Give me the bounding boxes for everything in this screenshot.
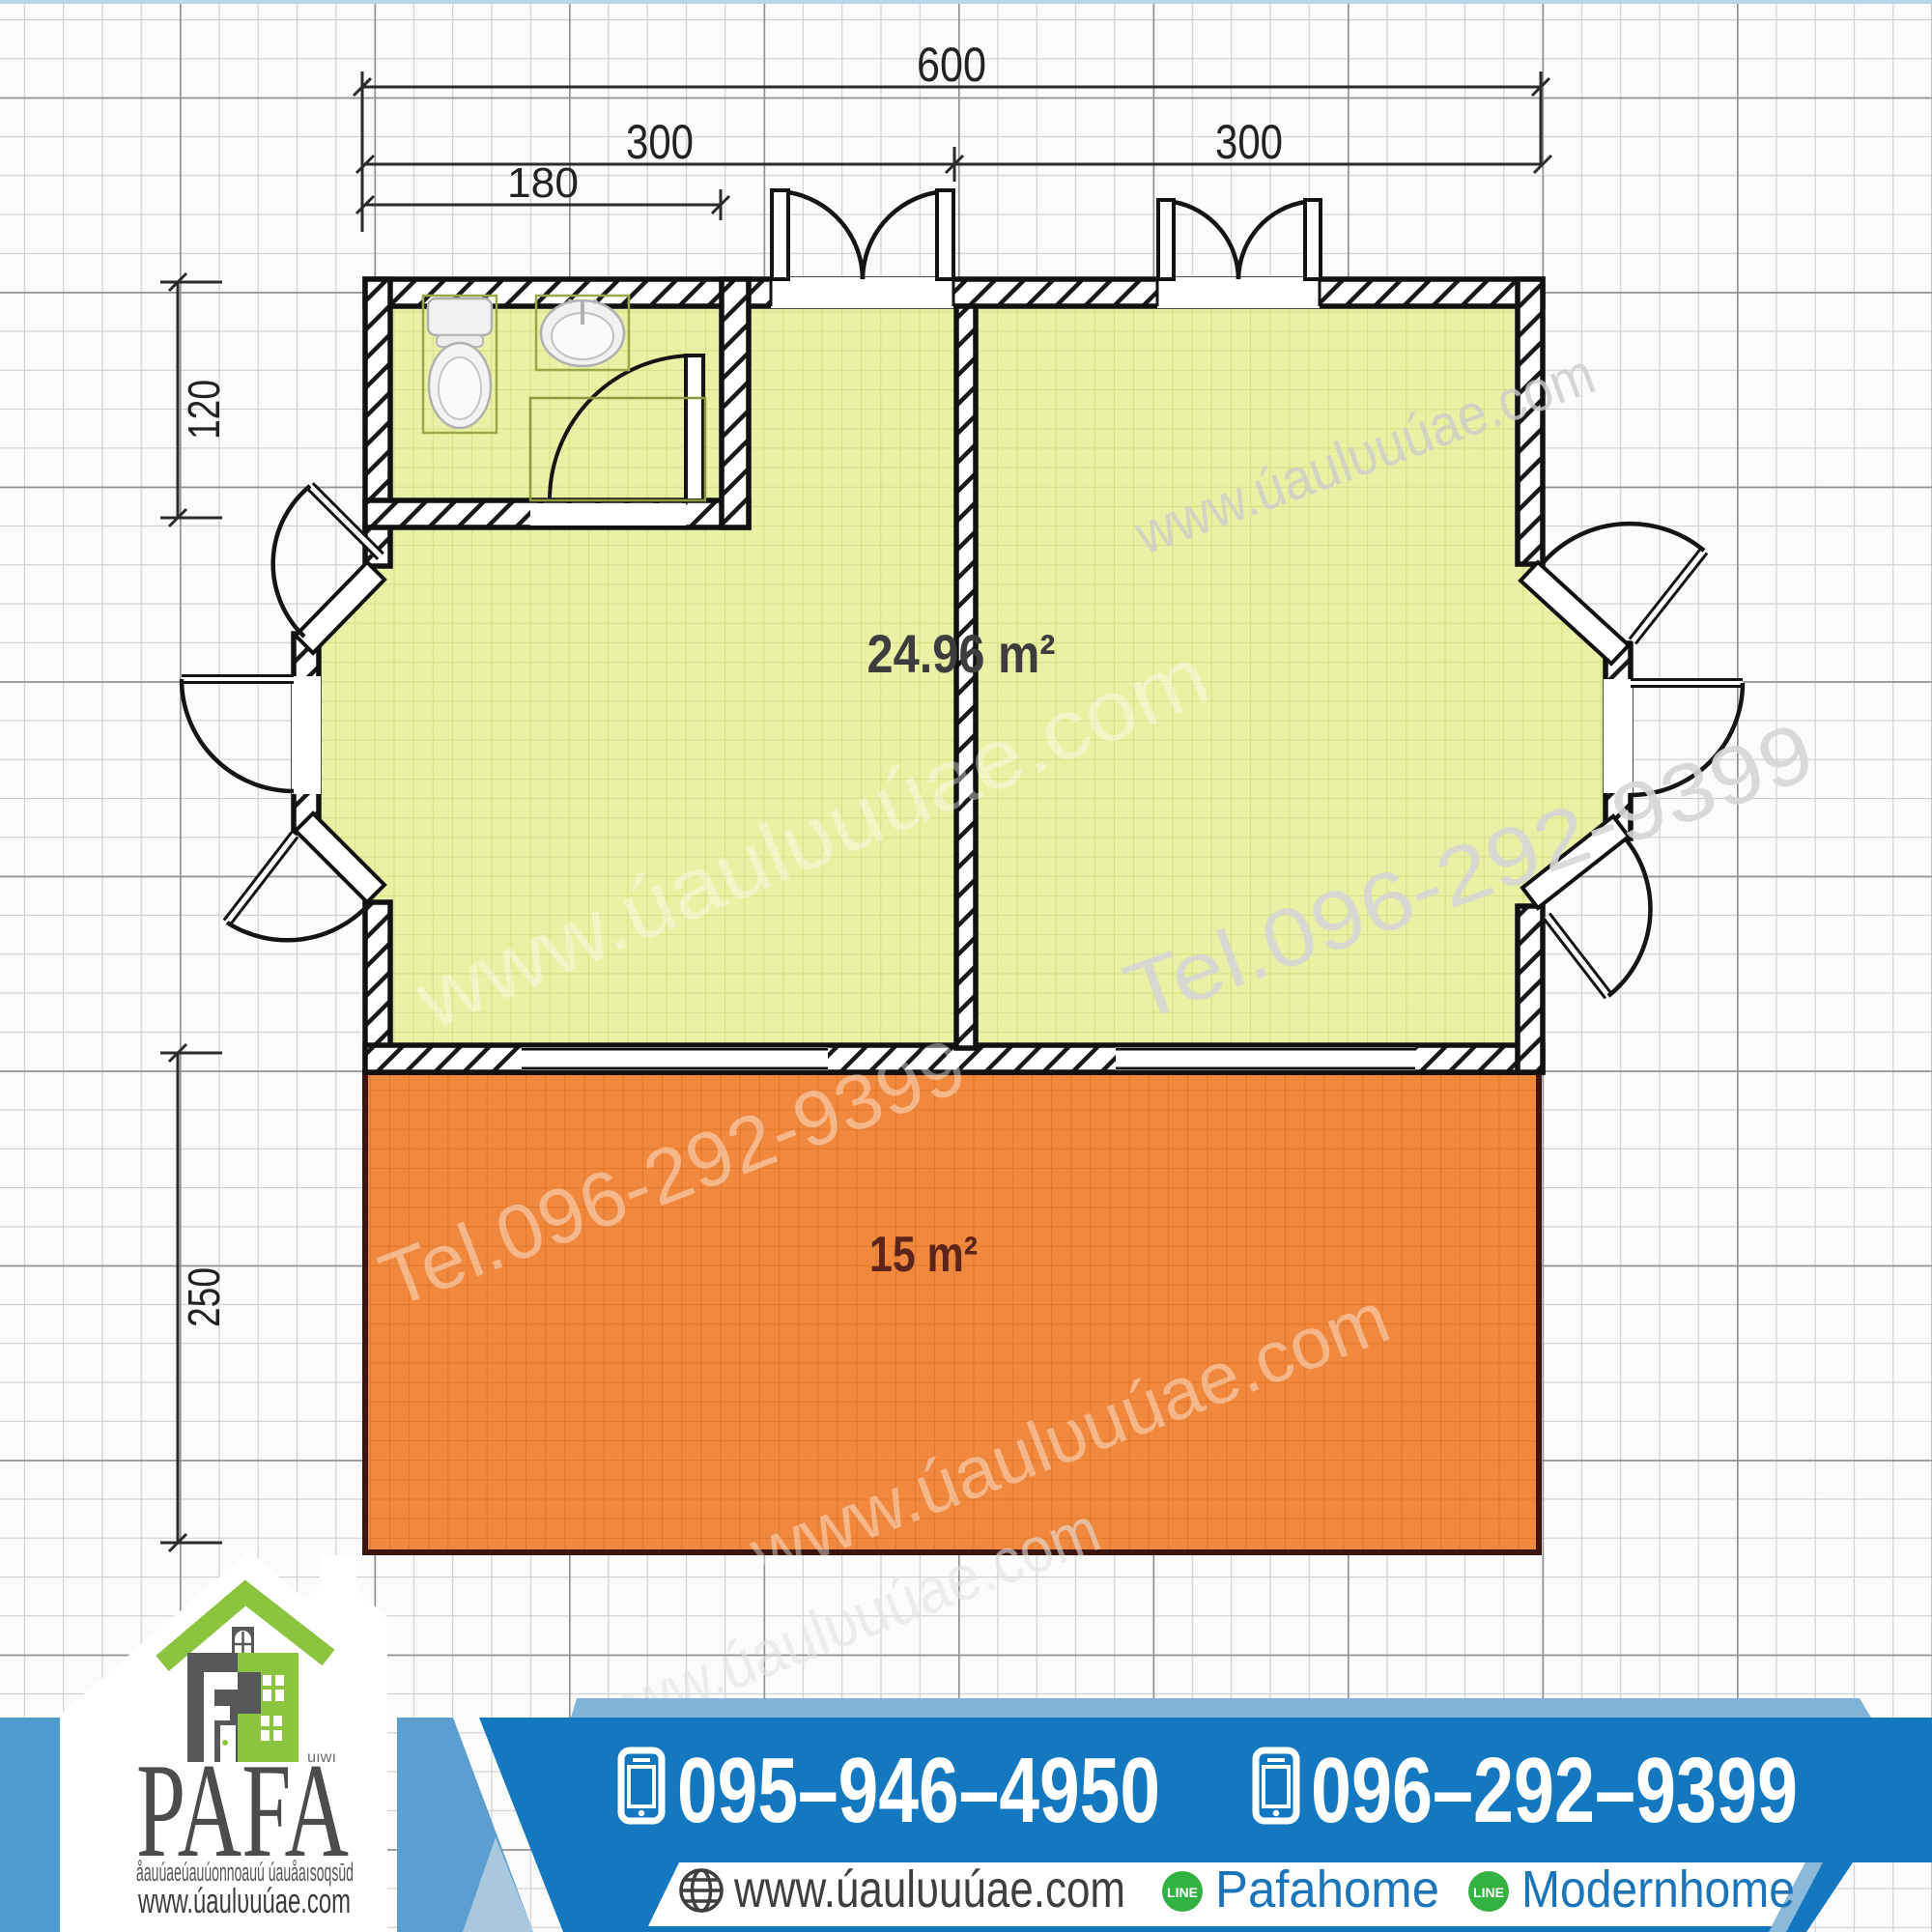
svg-text:250: 250 bbox=[179, 1267, 229, 1327]
svg-text:Modernhome: Modernhome bbox=[1521, 1861, 1795, 1918]
svg-text:www.úaulυuúae.com: www.úaulυuúae.com bbox=[137, 1881, 351, 1920]
svg-text:096–292–9399: 096–292–9399 bbox=[1311, 1739, 1798, 1842]
svg-text:LINE: LINE bbox=[1167, 1885, 1198, 1900]
svg-text:www.úaulυuúae.com: www.úaulυuúae.com bbox=[733, 1861, 1125, 1918]
svg-text:24.96 m²: 24.96 m² bbox=[867, 623, 1056, 684]
svg-text:600: 600 bbox=[917, 38, 986, 92]
svg-text:300: 300 bbox=[626, 115, 694, 169]
svg-text:095–946–4950: 095–946–4950 bbox=[677, 1739, 1160, 1842]
svg-text:15 m²: 15 m² bbox=[869, 1227, 978, 1283]
svg-text:LINE: LINE bbox=[1473, 1885, 1504, 1900]
svg-text:120: 120 bbox=[179, 380, 229, 440]
svg-text:180: 180 bbox=[507, 159, 579, 207]
svg-text:300: 300 bbox=[1215, 115, 1283, 169]
svg-text:Pafahome: Pafahome bbox=[1215, 1861, 1439, 1918]
